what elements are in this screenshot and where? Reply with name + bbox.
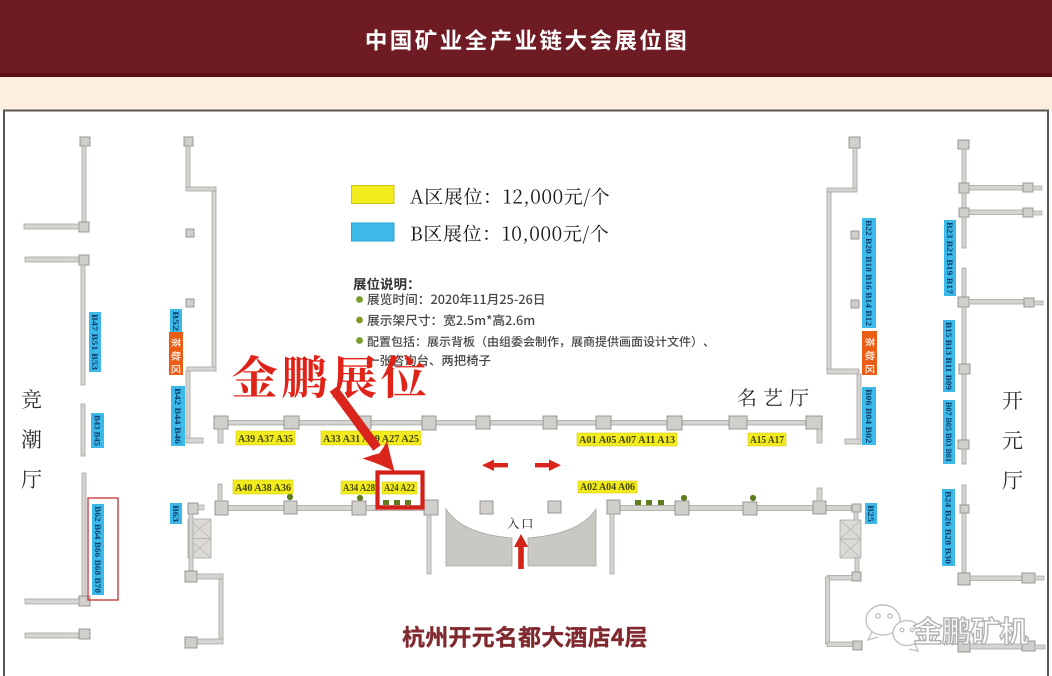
- svg-text:B23 B21 B19 B17: B23 B21 B19 B17: [945, 222, 955, 295]
- svg-text:A15 A17: A15 A17: [750, 434, 784, 446]
- svg-text:B63: B63: [171, 505, 181, 522]
- svg-text:B43 B45: B43 B45: [93, 415, 103, 446]
- svg-text:B25: B25: [866, 505, 876, 522]
- svg-text:A01 A05 A07 A11 A13: A01 A05 A07 A11 A13: [579, 434, 675, 446]
- svg-text:B07 B05 B03 B01: B07 B05 B03 B01: [944, 402, 954, 462]
- svg-text:A40 A38 A36: A40 A38 A36: [235, 482, 291, 494]
- svg-text:B62 B64 B66 B68 B70: B62 B64 B66 B68 B70: [93, 506, 103, 593]
- svg-text:B15 B13 B11 B09: B15 B13 B11 B09: [944, 322, 954, 390]
- svg-text:B42 B44 B46: B42 B44 B46: [173, 388, 183, 444]
- svg-text:A02 A04 A06: A02 A04 A06: [580, 481, 635, 493]
- svg-text:B24 B26 B28 B30: B24 B26 B28 B30: [944, 491, 954, 564]
- svg-text:A39 A37 A35: A39 A37 A35: [238, 433, 293, 445]
- svg-text:B47 B51 B53: B47 B51 B53: [90, 314, 100, 370]
- svg-text:B52: B52: [171, 311, 181, 331]
- svg-text:B22 B20 B18 B16 B14 B12: B22 B20 B18 B16 B14 B12: [864, 220, 874, 326]
- svg-text:A34 A28: A34 A28: [343, 482, 375, 494]
- svg-text:B06 B04 B02: B06 B04 B02: [864, 389, 874, 443]
- svg-text:A24 A22: A24 A22: [384, 482, 415, 494]
